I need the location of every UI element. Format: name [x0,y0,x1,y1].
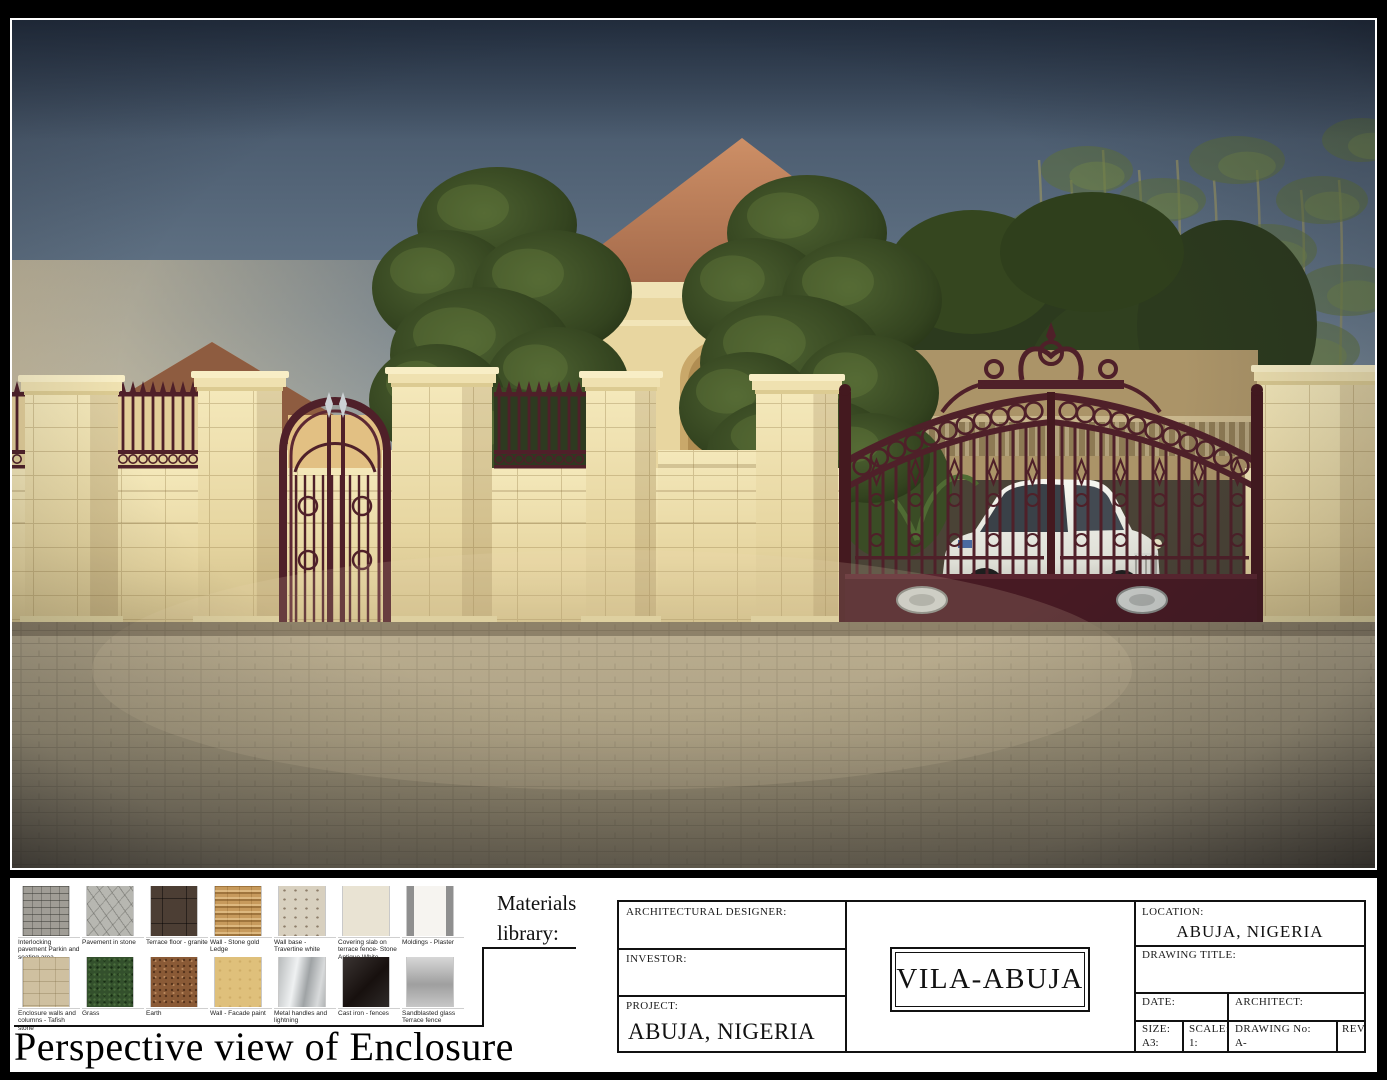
material-item: Grass [82,957,145,1017]
view-title: Perspective view of Enclosure [14,1024,514,1070]
materials-border-step [482,947,576,949]
project-value: ABUJA, NIGERIA [628,1019,815,1045]
size-value: A3: [1142,1037,1159,1049]
scale-value: 1: [1189,1037,1198,1049]
material-swatch-sandblasted-glass [406,957,454,1007]
material-label: Wall - Stone gold Ledge [210,937,272,954]
rev-label: REV. [1342,1023,1367,1035]
material-swatch-tafish-stone [22,957,70,1007]
material-item: Pavement in stone [82,886,145,946]
date-label: DATE: [1142,996,1175,1008]
material-label: Wall - Facade paint [210,1008,272,1017]
investor-label: INVESTOR: [626,953,687,965]
material-label: Earth [146,1008,208,1017]
material-label: Grass [82,1008,144,1017]
material-item: Covering slab on terrace fence- Stone An… [338,886,401,961]
material-item: Wall base - Travertine white [274,886,337,954]
titleblock-divider [1227,992,1229,1022]
location-label: LOCATION: [1142,906,1204,918]
material-item: Sandblasted glass Terrace fence [402,957,465,1025]
material-swatch-plaster [406,886,454,936]
material-swatch-interlocking-pavement [22,886,70,936]
titleblock-divider [619,995,847,997]
material-swatch-facade-paint [214,957,262,1007]
material-item: Moldings - Plaster [402,886,465,946]
architect-label: ARCHITECT: [1235,996,1303,1008]
material-item: Interlocking pavement Parkin and seating… [18,886,81,961]
material-item: Cast iron - fences [338,957,401,1017]
material-swatch-stone-pavement [86,886,134,936]
material-label: Moldings - Plaster [402,937,464,946]
material-swatch-antique-white [342,886,390,936]
materials-library-grid: Interlocking pavement Parkin and seating… [18,886,480,1028]
titleblock-divider [845,902,847,1051]
location-value: ABUJA, NIGERIA [1136,922,1364,942]
titleblock-divider [1182,1020,1184,1051]
drawing-no-value: A- [1235,1037,1247,1049]
title-block: ARCHITECTURAL DESIGNER: INVESTOR: PROJEC… [617,900,1366,1053]
titleblock-divider [1134,945,1364,947]
architectural-sheet: { "sheet": { "materials_library_label": … [0,0,1387,1080]
enclosure-render [12,20,1375,868]
titleblock-divider [619,948,847,950]
material-label: Sandblasted glass Terrace fence [402,1008,464,1025]
logo-box: VILA-ABUJA [890,947,1090,1012]
drawing-title-label: DRAWING TITLE: [1142,949,1236,961]
titleblock-divider [1134,992,1364,994]
scale-label: SCALE: [1189,1023,1229,1035]
material-label: Cast iron - fences [338,1008,400,1017]
material-label: Wall base - Travertine white [274,937,336,954]
materials-border-right [482,947,484,1027]
material-label: Metal handles and lightning [274,1008,336,1025]
material-item: Terrace floor - granite [146,886,209,946]
drawing-no-label: DRAWING No: [1235,1023,1311,1035]
material-item: Wall - Stone gold Ledge [210,886,273,954]
material-swatch-granite [150,886,198,936]
titleblock-divider [1134,1020,1364,1022]
material-item: Metal handles and lightning [274,957,337,1025]
material-swatch-earth [150,957,198,1007]
logo-text: VILA-ABUJA [895,952,1085,1007]
titleblock-divider [1336,1020,1338,1051]
material-swatch-cast-iron [342,957,390,1007]
size-label: SIZE: [1142,1023,1170,1035]
materials-library-label: Materials library: [497,888,597,949]
material-swatch-metal [278,957,326,1007]
material-item: Wall - Facade paint [210,957,273,1017]
project-label: PROJECT: [626,1000,678,1012]
material-label: Pavement in stone [82,937,144,946]
sheet-bottom-panel: Interlocking pavement Parkin and seating… [10,878,1377,1072]
material-swatch-travertine [278,886,326,936]
architectural-designer-label: ARCHITECTURAL DESIGNER: [626,906,787,918]
material-swatch-grass [86,957,134,1007]
material-item: Enclosure walls and columns - Tafish sto… [18,957,81,1032]
material-swatch-gold-ledge [214,886,262,936]
material-label: Terrace floor - granite [146,937,208,946]
material-item: Earth [146,957,209,1017]
perspective-render-viewport [10,18,1377,870]
